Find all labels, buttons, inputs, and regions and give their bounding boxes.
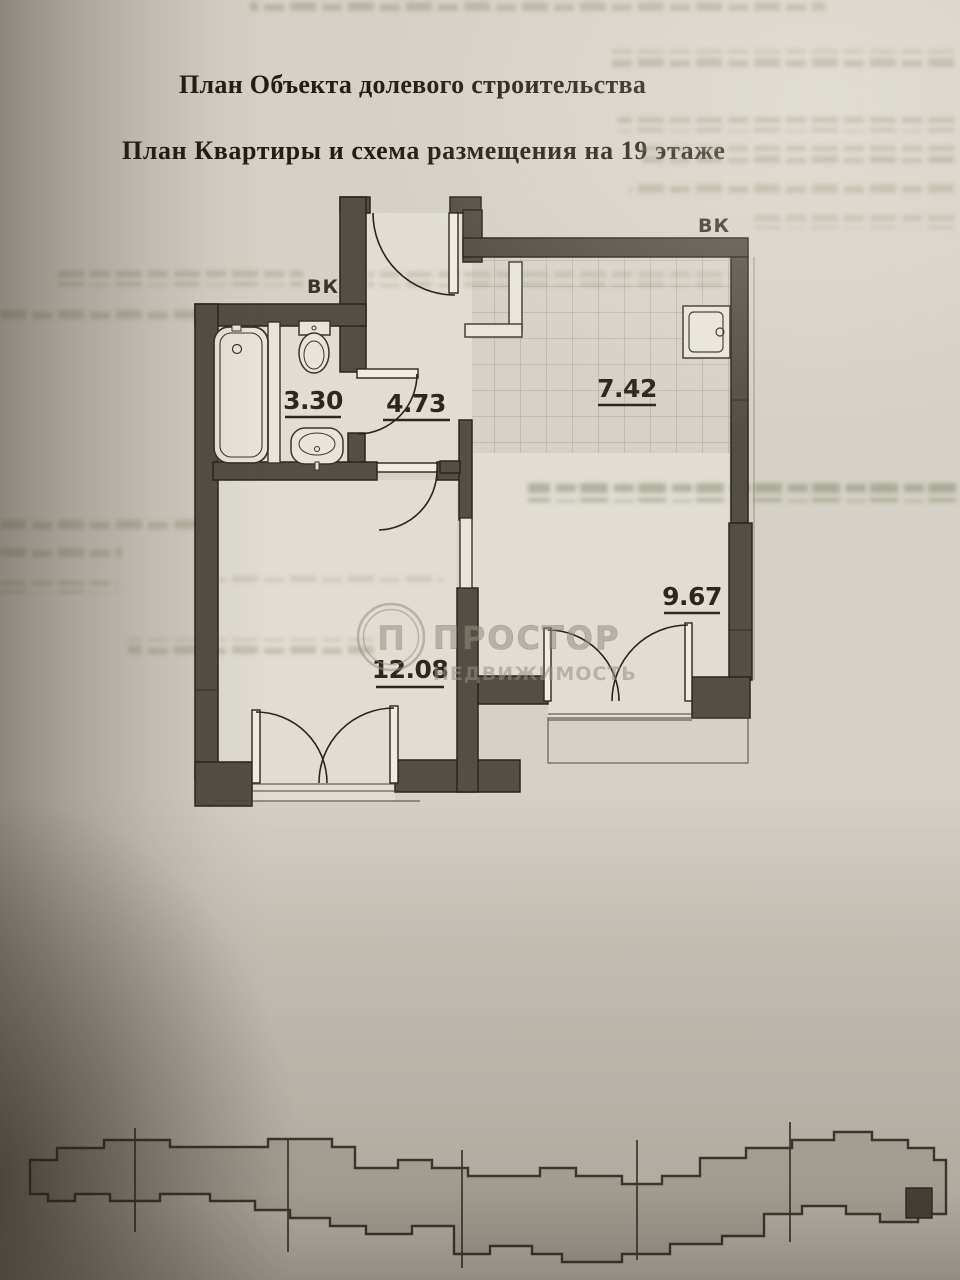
bedroom-loggia-outline <box>548 718 748 763</box>
watermark-subtitle: НЕДВИЖИМОСТЬ <box>433 663 637 685</box>
living-balcony-doorway <box>252 761 395 801</box>
living-door-leaf <box>377 463 437 472</box>
floor-plan: 4.73 3.30 7.42 12.08 9.67 ВК ВК П ПРОСТО… <box>0 0 960 1280</box>
watermark-logo-letter: П <box>377 619 405 659</box>
hallway-area-label: 4.73 <box>386 389 446 418</box>
toilet <box>299 321 330 373</box>
building-outline <box>30 1132 946 1262</box>
kitchen-area-label: 7.42 <box>597 374 657 403</box>
living-balcony-door-leaf <box>390 706 398 783</box>
apartment-location-marker <box>906 1188 932 1218</box>
bathroom-door-leaf <box>357 369 418 378</box>
scanned-document-page: План Объекта долевого строительства План… <box>0 0 960 1280</box>
building-footprint-schematic <box>30 1122 946 1268</box>
watermark-name: ПРОСТОР <box>433 619 620 657</box>
vent-shaft-label-left: ВК <box>307 276 339 298</box>
vent-shaft-label-right: ВК <box>698 215 730 237</box>
bedroom-balcony-door-leaf <box>685 623 692 701</box>
bathroom-area-label: 3.30 <box>283 386 343 415</box>
bathtub <box>214 325 268 463</box>
bedroom-area-label: 9.67 <box>662 582 722 611</box>
living-balcony-door-leaf <box>252 710 260 783</box>
entrance-door-leaf <box>449 213 458 293</box>
kitchen-sink <box>683 306 730 358</box>
